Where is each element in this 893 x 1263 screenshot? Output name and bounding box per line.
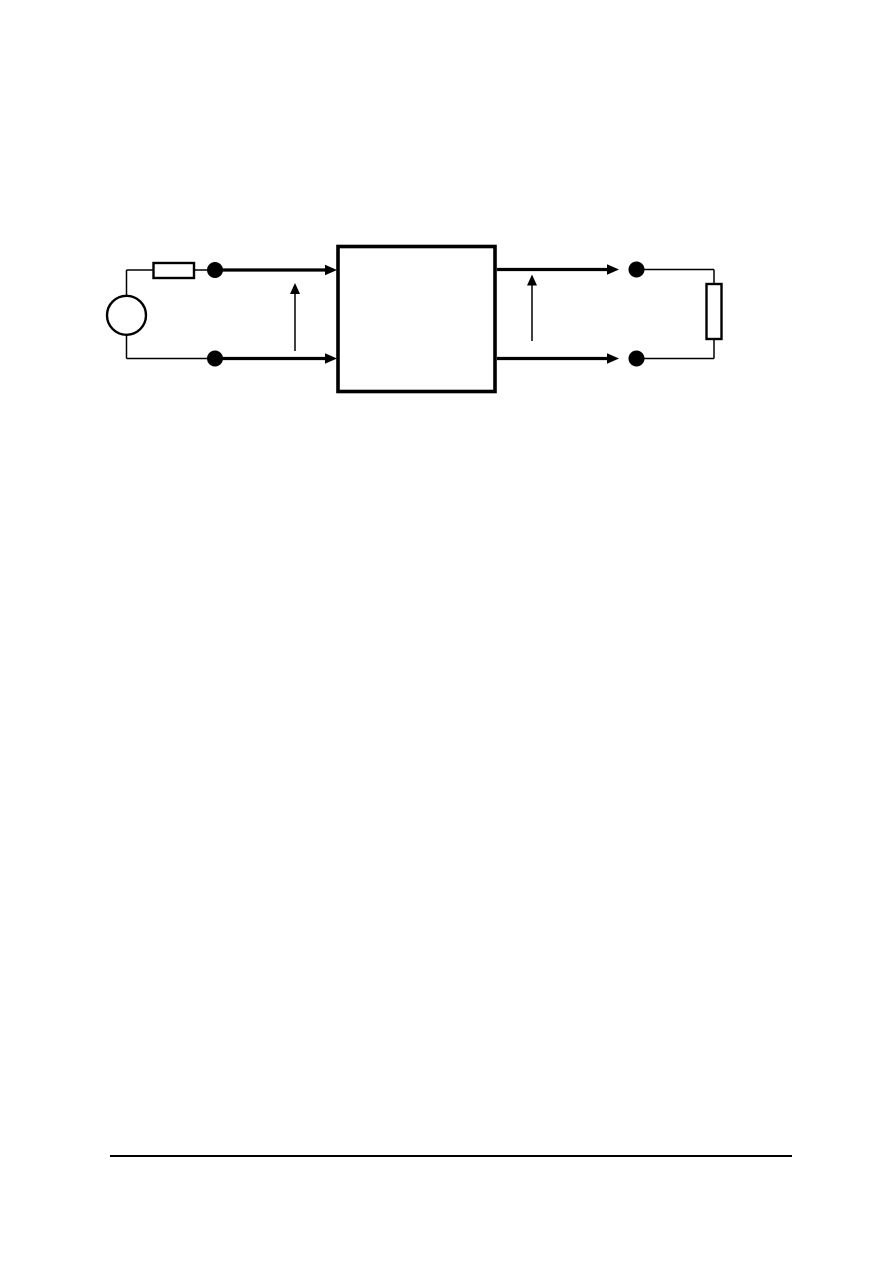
load-branch <box>644 270 722 359</box>
port1 <box>207 262 337 367</box>
port1-current-arrow-top-head-icon <box>325 265 337 275</box>
port2 <box>497 262 645 367</box>
document-page <box>0 0 893 1263</box>
series-resistor <box>154 263 195 278</box>
two-port-network-figure <box>0 0 893 1263</box>
port2-bottom-terminal-dot <box>629 351 645 367</box>
port1-current-arrow-bottom-head-icon <box>325 353 337 363</box>
source-circle <box>107 296 146 335</box>
port1-voltage-arrow-head-icon <box>290 283 300 294</box>
footer-rule <box>110 1155 792 1157</box>
port2-current-arrow-top-head-icon <box>607 264 619 274</box>
port2-voltage-arrow-head-icon <box>527 275 537 286</box>
network-box <box>338 247 495 392</box>
port2-current-arrow-bottom-head-icon <box>607 353 619 363</box>
load-resistor <box>707 284 722 339</box>
source-branch <box>107 263 215 359</box>
port2-top-terminal-dot <box>629 262 645 278</box>
